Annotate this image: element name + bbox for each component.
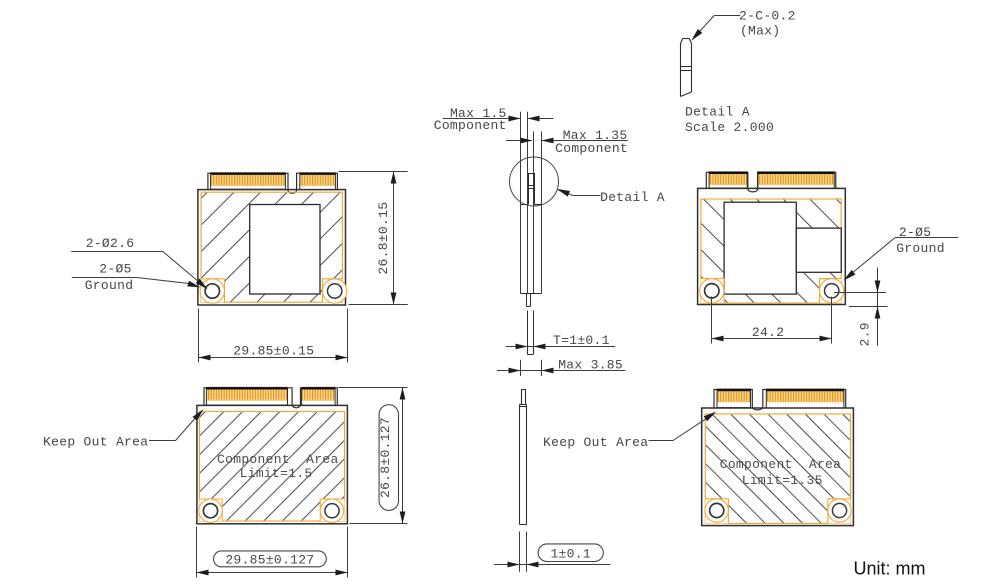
- svg-text:Detail A: Detail A: [685, 105, 750, 120]
- svg-text:Ground: Ground: [896, 241, 945, 256]
- svg-text:2.9: 2.9: [857, 322, 872, 346]
- svg-text:Keep Out Area: Keep Out Area: [543, 435, 648, 450]
- svg-text:Detail A: Detail A: [600, 190, 665, 205]
- svg-text:2-Ø5: 2-Ø5: [99, 262, 131, 277]
- svg-text:Component Area: Component Area: [720, 457, 842, 472]
- svg-text:Component: Component: [555, 141, 628, 156]
- svg-text:2-C-0.2: 2-C-0.2: [739, 9, 796, 24]
- svg-text:Limit=1.5: Limit=1.5: [240, 466, 313, 481]
- svg-text:29.85±0.127: 29.85±0.127: [225, 552, 314, 567]
- svg-text:Limit=1.35: Limit=1.35: [742, 473, 823, 488]
- svg-text:Scale 2.000: Scale 2.000: [685, 120, 774, 135]
- svg-text:Component Area: Component Area: [217, 452, 339, 467]
- svg-text:Ground: Ground: [85, 278, 134, 293]
- svg-text:T=1±0.1: T=1±0.1: [553, 333, 610, 348]
- svg-text:(Max): (Max): [740, 23, 781, 38]
- svg-text:26.8±0.127: 26.8±0.127: [378, 417, 393, 498]
- svg-text:1±0.1: 1±0.1: [550, 546, 591, 561]
- svg-text:2-Ø2.6: 2-Ø2.6: [86, 236, 135, 251]
- svg-text:Unit: mm: Unit: mm: [854, 559, 926, 579]
- svg-text:24.2: 24.2: [752, 325, 784, 340]
- svg-text:Keep Out Area: Keep Out Area: [43, 435, 148, 450]
- svg-text:Component: Component: [434, 118, 507, 133]
- svg-text:26.8±0.15: 26.8±0.15: [376, 202, 391, 275]
- svg-text:29.85±0.15: 29.85±0.15: [233, 344, 314, 359]
